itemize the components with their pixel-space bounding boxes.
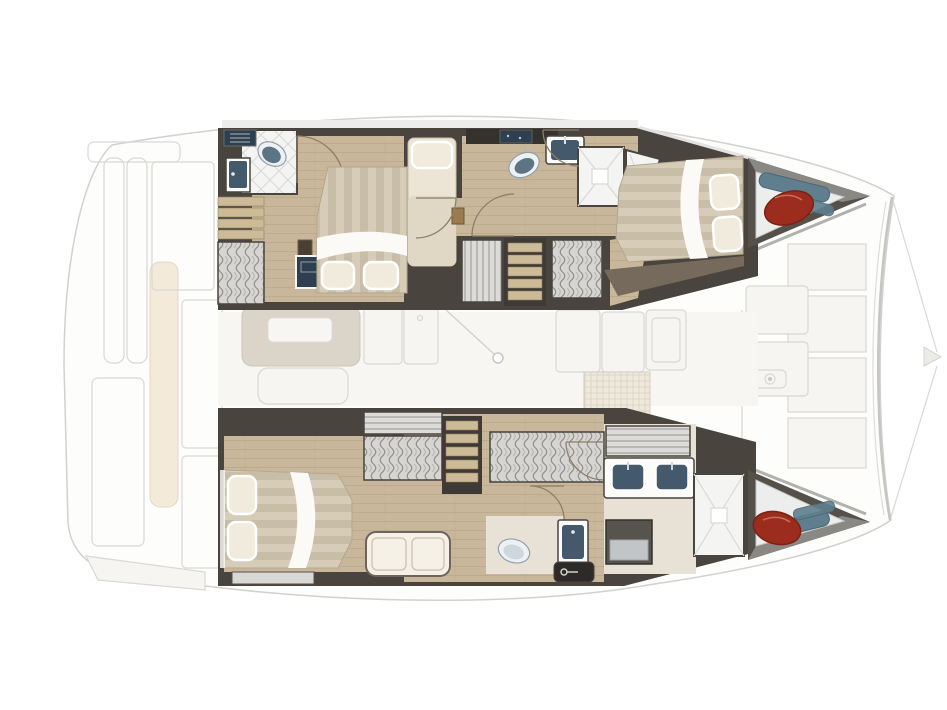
pillow bbox=[228, 476, 256, 514]
hanging-locker bbox=[218, 242, 264, 304]
mast-foot bbox=[493, 353, 503, 363]
port-companionway bbox=[462, 238, 602, 306]
basin-sparkle bbox=[519, 137, 521, 139]
storage-panel bbox=[232, 572, 314, 584]
stair-tread bbox=[446, 447, 478, 456]
stair-tread bbox=[446, 473, 478, 482]
shower-drain bbox=[592, 169, 608, 184]
salon bbox=[218, 304, 758, 420]
stair-tread bbox=[508, 267, 542, 276]
washbasin bbox=[562, 525, 584, 559]
stair-tread bbox=[508, 291, 542, 300]
step bbox=[218, 230, 264, 239]
basin-sparkle bbox=[507, 135, 509, 137]
wide-hanging-locker bbox=[490, 432, 604, 482]
basin-faucet bbox=[571, 530, 575, 534]
stair-tread bbox=[446, 460, 478, 469]
floor-plan-image bbox=[0, 0, 947, 710]
bowsprit-tip bbox=[924, 347, 941, 366]
platform-panel bbox=[788, 418, 866, 468]
basin-faucet bbox=[231, 172, 235, 176]
cabinet-unit bbox=[556, 310, 600, 372]
galley-unit bbox=[364, 304, 402, 364]
starboard-aft-cabin bbox=[220, 470, 352, 584]
stair-tread bbox=[508, 255, 542, 264]
stair-tread bbox=[446, 434, 478, 443]
pillow bbox=[709, 174, 739, 210]
catamaran-floor-plan bbox=[0, 0, 947, 710]
platform-panel bbox=[788, 244, 866, 290]
table-inlay bbox=[268, 318, 332, 342]
sofa-seat bbox=[258, 368, 348, 404]
step bbox=[218, 208, 264, 217]
hanging-locker bbox=[364, 436, 442, 480]
berth-blanket bbox=[408, 196, 456, 266]
louvered-locker bbox=[606, 426, 690, 456]
pillow bbox=[412, 142, 452, 168]
shower-drain bbox=[711, 508, 727, 523]
stair-tread bbox=[508, 279, 542, 288]
cabinet-unit bbox=[602, 312, 644, 372]
step bbox=[218, 197, 264, 206]
stair-tread bbox=[446, 421, 478, 430]
step bbox=[218, 219, 264, 228]
counter-basin bbox=[500, 130, 532, 143]
pillow bbox=[712, 216, 742, 252]
appliance-screen bbox=[610, 540, 648, 560]
pillow bbox=[228, 522, 256, 560]
hanging-locker bbox=[552, 240, 602, 298]
stair-tread bbox=[508, 243, 542, 252]
cockpit-bench-cushion bbox=[150, 262, 178, 507]
pillow bbox=[322, 262, 354, 289]
louvered-hatch bbox=[364, 412, 442, 434]
louvered-locker bbox=[462, 240, 502, 302]
windlass-axis bbox=[768, 377, 772, 381]
galley-sink-unit bbox=[404, 304, 438, 364]
pillow bbox=[364, 262, 398, 289]
headboard bbox=[220, 470, 225, 568]
